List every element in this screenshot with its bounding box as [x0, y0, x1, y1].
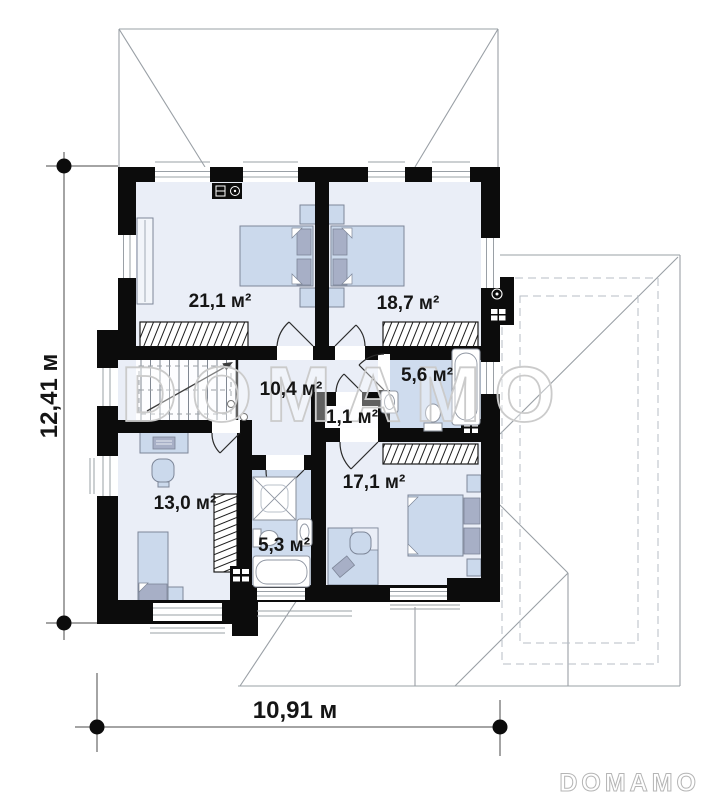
brand-logo: DOMAMO [559, 769, 700, 797]
chair-icon [350, 532, 371, 554]
area-label-hall: 10,4 м² [260, 379, 323, 400]
wardrobe-icon [137, 218, 153, 304]
area-label-bedroom-top-left: 21,1 м² [189, 291, 252, 312]
height-dimension-label: 12,41 м [36, 354, 63, 438]
window [368, 162, 405, 182]
window [90, 456, 118, 496]
area-label-bedroom-bottom-right: 17,1 м² [343, 472, 406, 493]
area-label-bathroom-top: 5,6 м² [401, 365, 453, 386]
area-label-bedroom-top-right: 18,7 м² [377, 293, 440, 314]
window [118, 235, 136, 278]
vent-grille-icon [230, 566, 252, 588]
roof-outline-terrace [240, 600, 415, 686]
window [432, 162, 470, 182]
window [243, 162, 298, 182]
roof-outline-top [119, 29, 498, 167]
area-label-closet: 1,1 м² [326, 407, 378, 428]
area-label-bathroom-bottom: 5,3 м² [258, 535, 310, 556]
floor-plan-canvas: 12,41 м 10,91 м DOMAMO 21,1 м² 18,7 м² 1… [0, 0, 724, 800]
window [481, 238, 500, 288]
bathtub-icon [253, 556, 310, 587]
window [155, 162, 210, 182]
area-label-bedroom-bottom-left: 13,0 м² [154, 493, 217, 514]
width-dimension-label: 10,91 м [253, 697, 337, 724]
wardrobe-hatch [140, 322, 248, 347]
wardrobe-hatch [383, 444, 478, 464]
chimney-icon [212, 183, 242, 199]
window [150, 603, 225, 633]
wardrobe-hatch [214, 494, 237, 572]
floor-plan-svg: 12,41 м 10,91 м DOMAMO 21,1 м² 18,7 м² 1… [0, 0, 724, 800]
window [97, 368, 118, 406]
shower-icon [253, 477, 296, 520]
wardrobe-hatch [383, 322, 478, 347]
